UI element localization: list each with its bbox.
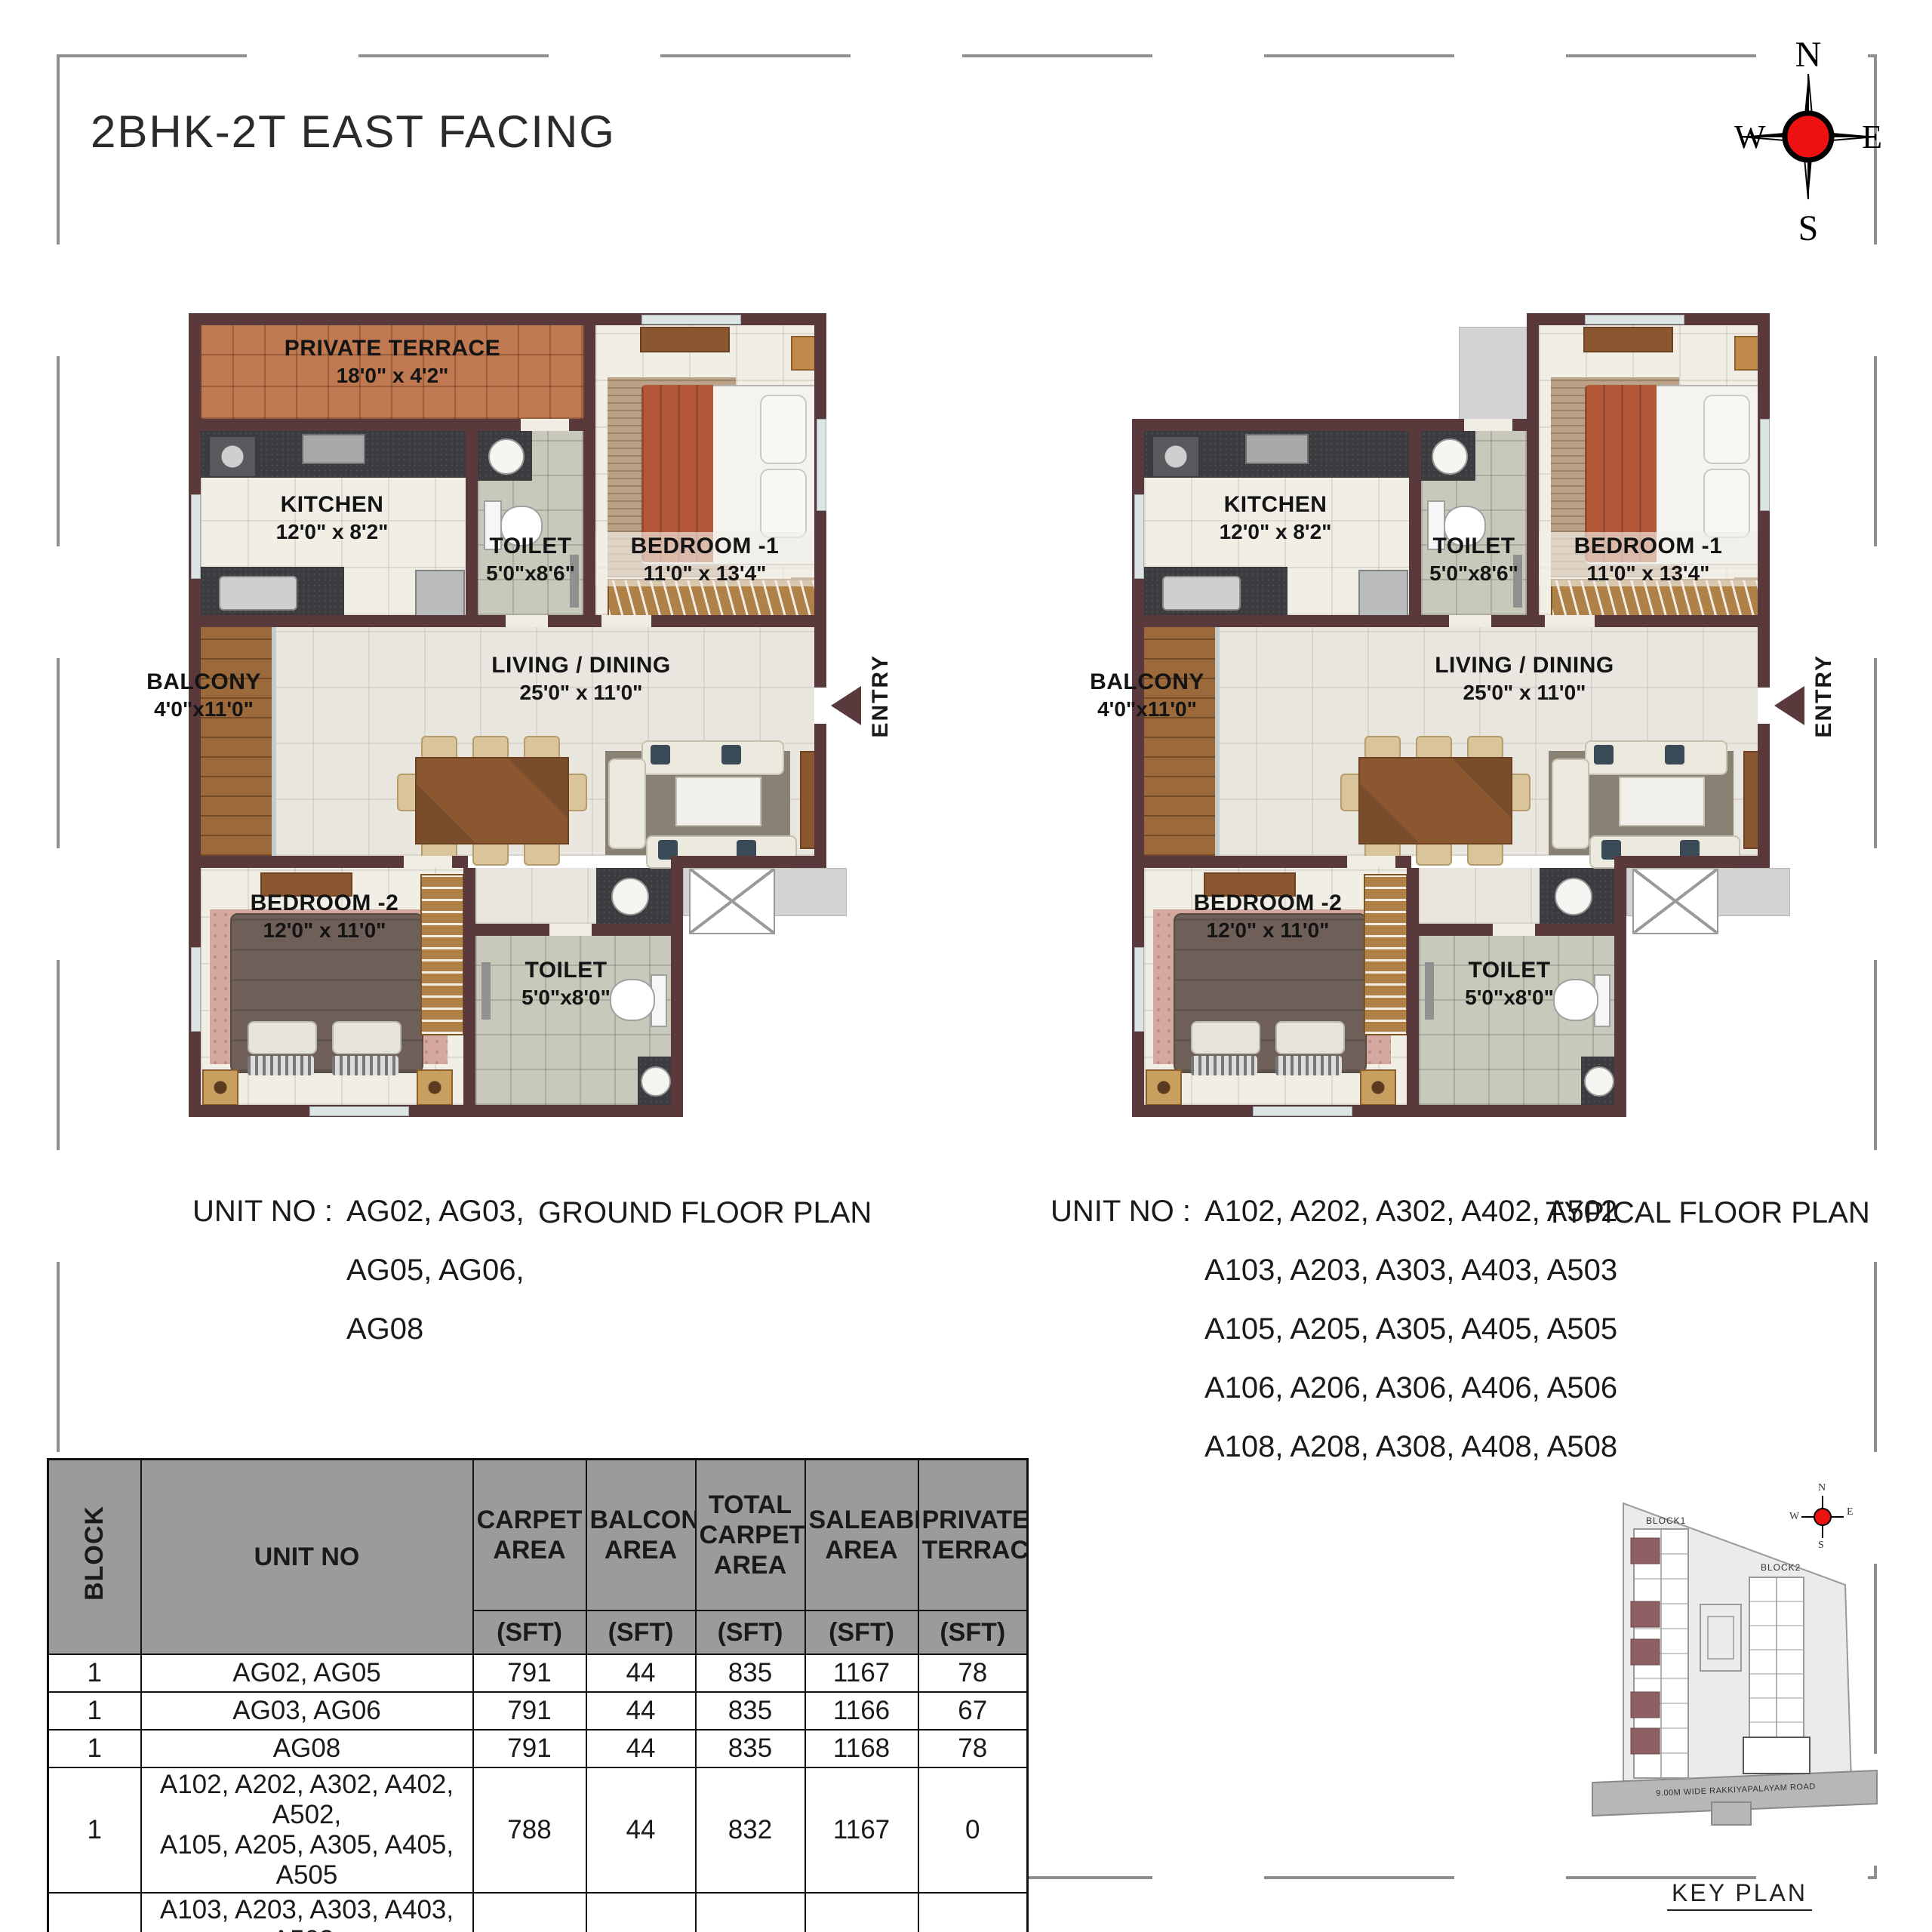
- sofa: [1552, 758, 1589, 849]
- room-label-living: LIVING / DINING 25'0" x 11'0": [468, 651, 694, 706]
- compass-west-label: W: [1734, 118, 1766, 155]
- fridge: [415, 570, 465, 617]
- room-label-toilet1: TOILET 5'0"x8'6": [478, 532, 583, 586]
- sft-header: (SFT): [918, 1611, 1028, 1654]
- bedroom2-nightstand: [417, 1069, 453, 1106]
- window: [1585, 315, 1684, 325]
- window: [641, 315, 741, 325]
- coffee-table: [1619, 777, 1705, 826]
- col-header-balcony-area: BALCONY AREA: [586, 1460, 696, 1611]
- key-plan-title: KEY PLAN: [1574, 1879, 1906, 1907]
- area-table: BLOCK UNIT NO CARPET AREA BALCONY AREA T…: [47, 1458, 1029, 1932]
- exterior-ledge: [1459, 327, 1528, 420]
- wall-segment: [1614, 856, 1770, 868]
- toilet2-shower: [481, 962, 491, 1020]
- col-header-total-carpet-area: TOTAL CARPET AREA: [696, 1460, 805, 1611]
- door-opening: [521, 419, 569, 431]
- bedroom2-pillow: [1191, 1021, 1260, 1054]
- bedroom2-cushion: [332, 1056, 398, 1075]
- floor-plan-sheet: 2BHK-2T EAST FACING N S W E: [0, 0, 1932, 1932]
- wall-segment: [1614, 868, 1626, 1117]
- bedroom1-pillow: [1703, 395, 1750, 464]
- compass-rose: N S W E: [1733, 27, 1884, 246]
- ground-plan-caption: GROUND FLOOR PLAN: [538, 1196, 872, 1230]
- col-header-unit-no: UNIT NO: [141, 1460, 473, 1654]
- col-header-private-terrace: PRIVATE TERRACE: [918, 1460, 1028, 1611]
- door-opening: [1545, 615, 1595, 627]
- key-plan-compass-south: S: [1818, 1540, 1825, 1552]
- bedroom2-pillow: [1275, 1021, 1345, 1054]
- fridge: [1358, 570, 1408, 617]
- coffee-table: [675, 777, 761, 826]
- room-label-toilet2: TOILET 5'0"x8'0": [1434, 956, 1585, 1011]
- col-header-carpet-area: CARPET AREA: [473, 1460, 586, 1611]
- key-plan-compass-west: W: [1789, 1511, 1800, 1523]
- kitchen-sink: [1162, 576, 1241, 611]
- key-plan-block2-label: BLOCK2: [1761, 1562, 1801, 1573]
- dining-chair: [472, 841, 509, 866]
- unit-no-label: UNIT NO :: [192, 1182, 333, 1358]
- balcony-floor: [201, 627, 272, 856]
- window: [1253, 1106, 1352, 1116]
- key-plan: BLOCK1 BLOCK2 N S W E 9.00M WIDE RAKKIYA…: [1574, 1472, 1932, 1932]
- typical-floor-plan: KITCHEN 12'0" x 8'2" TOILET 5'0"x8'6" BE…: [1132, 313, 1770, 1117]
- door-opening: [1449, 615, 1491, 627]
- unit-no-label: UNIT NO :: [1051, 1182, 1191, 1476]
- ground-unit-numbers: UNIT NO : AG02, AG03, AG05, AG06, AG08: [192, 1182, 525, 1358]
- sofa: [608, 758, 646, 849]
- washbasin: [1555, 878, 1592, 915]
- bedroom1-nightstand: [1734, 336, 1761, 371]
- compass-south-label: S: [1798, 208, 1819, 246]
- window: [817, 419, 826, 511]
- bedroom2-pillow: [332, 1021, 401, 1054]
- tv-unit: [800, 751, 816, 849]
- toilet1-basin: [488, 438, 525, 475]
- window: [309, 1106, 409, 1116]
- key-plan-compass-north: N: [1818, 1482, 1826, 1494]
- wall-segment: [1527, 313, 1539, 627]
- room-label-kitchen: KITCHEN 12'0" x 8'2": [1174, 491, 1377, 545]
- room-label-living: LIVING / DINING 25'0" x 11'0": [1411, 651, 1638, 706]
- table-row: 1 AG02, AG05 791 44 835 1167 78: [48, 1654, 1028, 1692]
- col-header-saleable-area: SALEABLE AREA: [805, 1460, 918, 1611]
- kitchen-sink: [219, 576, 297, 611]
- wall-segment: [1409, 419, 1421, 627]
- bedroom2-nightstand: [202, 1069, 238, 1106]
- sofa-cushion: [1665, 745, 1684, 764]
- window: [1134, 494, 1144, 579]
- sofa-cushion: [651, 745, 670, 764]
- bedroom2-cushion: [1191, 1056, 1257, 1075]
- bedroom2-cushion: [1275, 1056, 1342, 1075]
- balcony-floor: [1144, 627, 1215, 856]
- door-opening: [1464, 419, 1512, 431]
- dining-table: [1358, 757, 1512, 844]
- balcony-slider: [272, 627, 276, 856]
- wall-segment: [466, 419, 478, 627]
- door-opening: [601, 615, 651, 627]
- wall-segment: [583, 313, 595, 627]
- bedroom1-pillow: [760, 469, 807, 538]
- key-plan-compass-east: E: [1847, 1506, 1854, 1518]
- kitchen-hob: [302, 434, 365, 464]
- washing-machine: [208, 435, 257, 478]
- window: [1134, 947, 1144, 1032]
- washing-machine: [1152, 435, 1200, 478]
- bedroom1-dresser: [640, 327, 730, 352]
- sft-header: (SFT): [805, 1611, 918, 1654]
- room-label-bedroom1: BEDROOM -1 11'0" x 13'4": [1539, 532, 1758, 586]
- page-title: 2BHK-2T EAST FACING: [91, 106, 616, 158]
- wall-segment: [1132, 1105, 1626, 1117]
- bedroom1-pillow: [760, 395, 807, 464]
- table-row: 1 A102, A202, A302, A402, A502, A105, A2…: [48, 1767, 1028, 1893]
- wall-segment: [814, 724, 826, 868]
- bedroom2-nightstand: [1146, 1069, 1182, 1106]
- toilet2-shower: [1425, 962, 1434, 1020]
- room-label-bedroom2: BEDROOM -2 12'0" x 11'0": [1162, 889, 1374, 943]
- bedroom1-nightstand: [791, 336, 817, 371]
- dining-chair: [1467, 841, 1503, 866]
- table-row: 1 A103, A203, A303, A403, A503, A106, A2…: [48, 1893, 1028, 1932]
- sofa-cushion: [1594, 745, 1614, 764]
- window: [191, 494, 201, 579]
- wall-segment: [671, 856, 826, 868]
- wall-segment: [463, 868, 475, 1117]
- door-opening: [404, 856, 452, 868]
- door-opening: [549, 924, 592, 936]
- toilet1-basin: [1432, 438, 1468, 475]
- table-row: 1 AG08 791 44 835 1168 78: [48, 1730, 1028, 1767]
- unit-no-lines: AG02, AG03, AG05, AG06, AG08: [346, 1182, 525, 1358]
- dining-table: [415, 757, 569, 844]
- bedroom1-dresser: [1583, 327, 1673, 352]
- door-opening: [1493, 924, 1535, 936]
- room-label-terrace: PRIVATE TERRACE 18'0" x 4'2": [264, 334, 521, 389]
- toilet2-basin: [1584, 1066, 1614, 1097]
- entry-label: ENTRY: [868, 654, 894, 738]
- bedroom1-pillow: [1703, 469, 1750, 538]
- wall-segment: [671, 868, 683, 1117]
- wall-segment: [189, 1105, 683, 1117]
- bedroom2-pillow: [248, 1021, 317, 1054]
- window: [191, 947, 201, 1032]
- room-label-toilet1: TOILET 5'0"x8'6": [1421, 532, 1527, 586]
- page-border-top: [57, 54, 1877, 57]
- room-label-kitchen: KITCHEN 12'0" x 8'2": [230, 491, 434, 545]
- tv-unit: [1743, 751, 1759, 849]
- toilet2-basin: [641, 1066, 671, 1097]
- bedroom2-cushion: [248, 1056, 314, 1075]
- room-label-bedroom2: BEDROOM -2 12'0" x 11'0": [219, 889, 430, 943]
- duct-void: [689, 868, 775, 934]
- room-label-bedroom1: BEDROOM -1 11'0" x 13'4": [595, 532, 814, 586]
- wall-segment: [1407, 868, 1419, 1117]
- table-row: 1 AG03, AG06 791 44 835 1166 67: [48, 1692, 1028, 1730]
- duct-void: [1632, 868, 1718, 934]
- entry-arrow: [831, 686, 861, 725]
- washbasin: [611, 878, 649, 915]
- compass-north-label: N: [1795, 35, 1822, 75]
- room-label-balcony: BALCONY 4'0"x11'0": [1064, 668, 1230, 722]
- room-label-balcony: BALCONY 4'0"x11'0": [121, 668, 287, 722]
- sft-header: (SFT): [696, 1611, 805, 1654]
- door-opening: [506, 615, 548, 627]
- sft-header: (SFT): [586, 1611, 696, 1654]
- typical-plan-caption: TYPICAL FLOOR PLAN: [1546, 1196, 1870, 1230]
- window: [1760, 419, 1770, 511]
- sofa-cushion: [721, 745, 741, 764]
- key-plan-drawing: [1574, 1472, 1932, 1932]
- dining-chair: [524, 841, 560, 866]
- typical-unit-numbers: UNIT NO : A102, A202, A302, A402, A502 A…: [1051, 1182, 1617, 1476]
- ground-floor-plan: PRIVATE TERRACE 18'0" x 4'2" KITCHEN 12'…: [189, 313, 826, 1117]
- sft-header: (SFT): [473, 1611, 586, 1654]
- entry-arrow: [1774, 686, 1804, 725]
- balcony-slider: [1215, 627, 1220, 856]
- compass-east-label: E: [1862, 118, 1882, 155]
- room-label-toilet2: TOILET 5'0"x8'0": [491, 956, 641, 1011]
- kitchen-hob: [1245, 434, 1309, 464]
- entry-label: ENTRY: [1811, 654, 1837, 738]
- dining-chair: [1416, 841, 1452, 866]
- col-header-block: BLOCK: [48, 1460, 141, 1654]
- wall-segment: [1758, 724, 1770, 868]
- key-plan-block1-label: BLOCK1: [1646, 1515, 1686, 1526]
- bedroom2-nightstand: [1360, 1069, 1396, 1106]
- door-opening: [1347, 856, 1395, 868]
